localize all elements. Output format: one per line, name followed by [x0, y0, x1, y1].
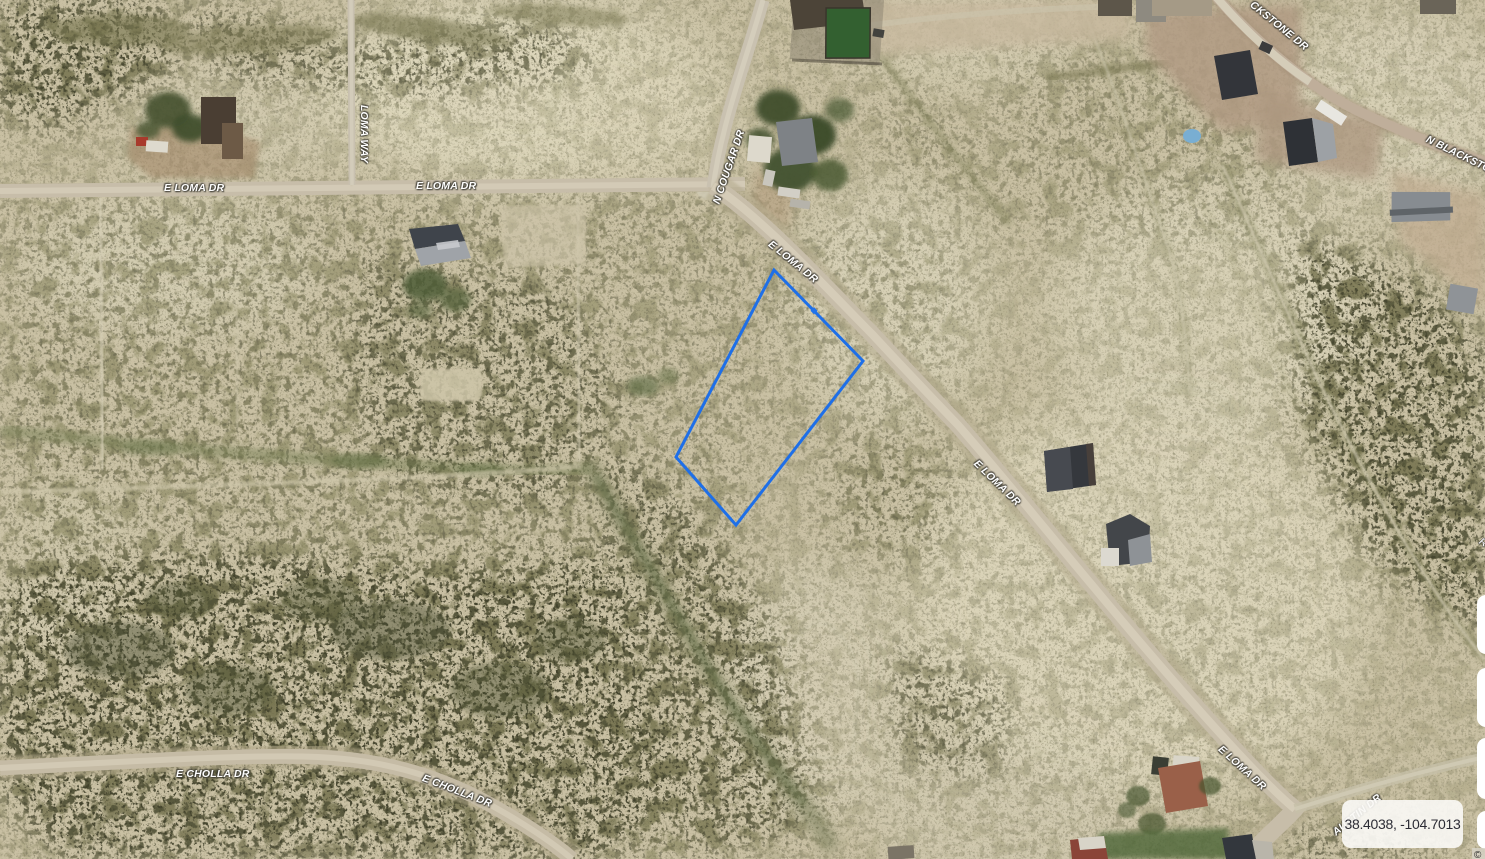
- svg-text:©: ©: [1474, 850, 1482, 859]
